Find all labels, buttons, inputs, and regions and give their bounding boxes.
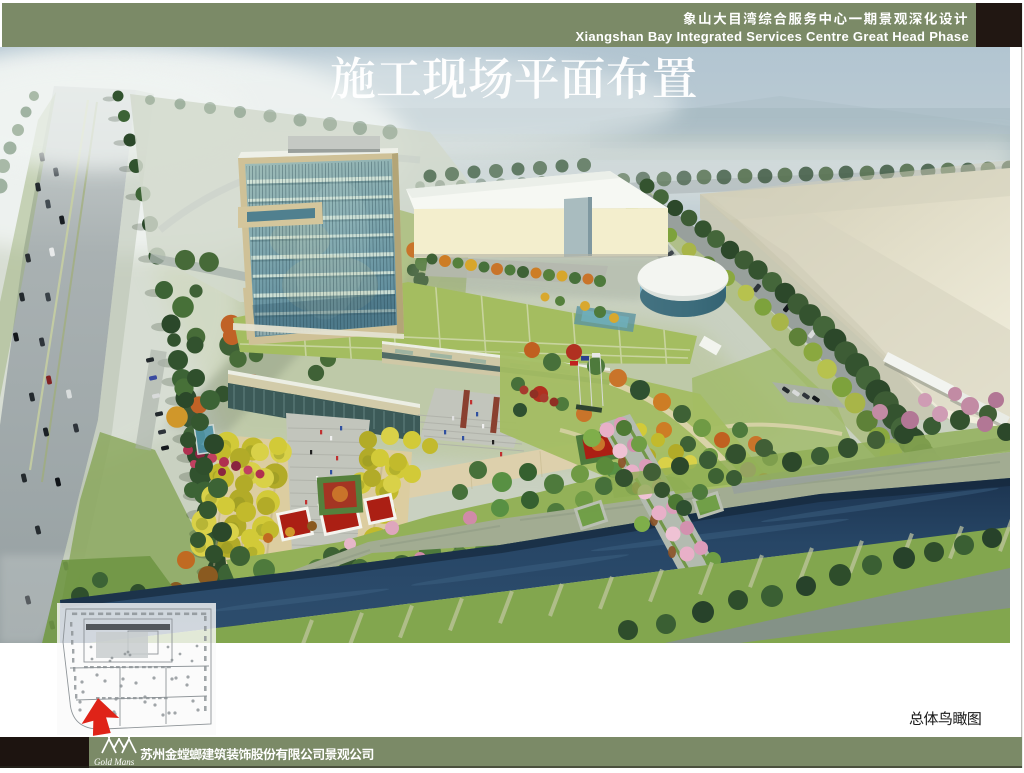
- svg-text:Gold Mans: Gold Mans: [94, 757, 135, 767]
- svg-text:Xiangshan Bay Integrated Servi: Xiangshan Bay Integrated Services Centre…: [575, 29, 969, 44]
